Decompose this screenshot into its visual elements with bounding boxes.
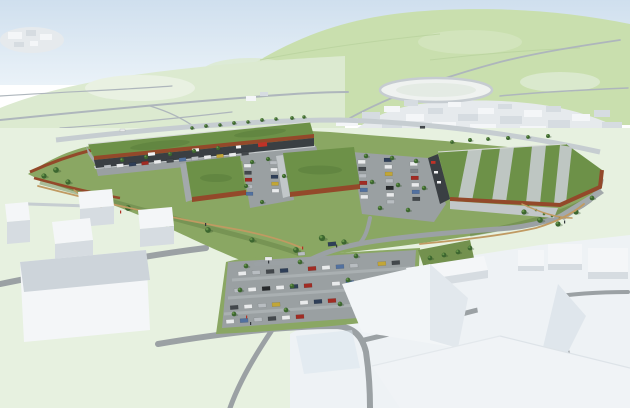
large-house-block <box>20 250 150 342</box>
field-patch <box>202 58 298 86</box>
building-b2 <box>276 147 360 198</box>
storefront-sign <box>437 181 441 184</box>
storefront-sign <box>148 152 155 156</box>
render-canvas <box>0 0 630 408</box>
storefront-sign <box>236 145 241 148</box>
oval-infield <box>396 83 476 97</box>
storefront-sign <box>434 171 438 174</box>
car <box>420 126 425 129</box>
field-patch <box>418 30 522 54</box>
house-block <box>5 202 30 244</box>
car <box>120 129 125 132</box>
car <box>265 257 272 261</box>
building-b1 <box>180 156 246 202</box>
field-patch <box>520 72 600 92</box>
storefront-sign-red <box>258 142 267 147</box>
shadow-soft <box>296 330 360 374</box>
house-block <box>138 207 174 247</box>
car <box>328 242 336 247</box>
storefront-sign-red <box>431 161 436 164</box>
